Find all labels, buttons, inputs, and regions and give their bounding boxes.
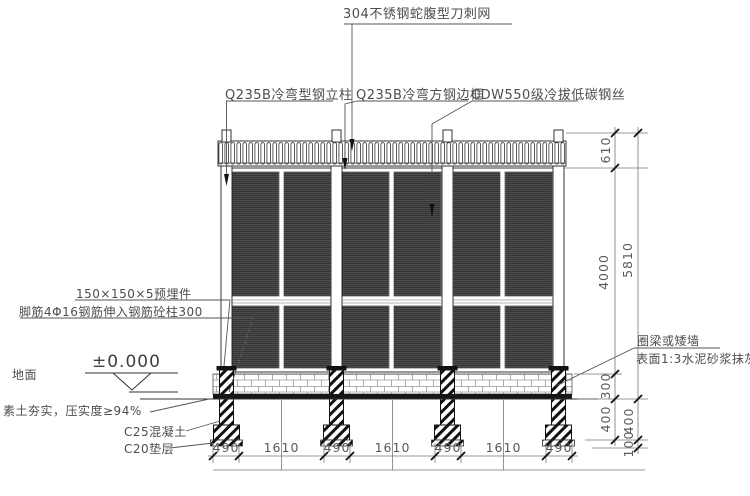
drawing-canvas: [0, 0, 750, 496]
label-ring-beam: 圈梁或矮墙: [637, 332, 700, 349]
label-embed-plate: 150×150×5预埋件: [76, 285, 192, 302]
dim-bay-5: 1610: [476, 441, 532, 455]
label-cushion: C20垫层: [124, 440, 174, 457]
label-concrete: C25混凝土: [124, 423, 187, 440]
label-wire: CDW550级冷拔低碳钢丝: [471, 84, 625, 103]
bottom-dimensions: [208, 400, 645, 470]
razor-wire-band: [218, 141, 566, 166]
ring-beam: [213, 394, 572, 399]
dim-bay-3: 1610: [365, 441, 421, 455]
label-razor-wire: 304不锈钢蛇腹型刀刺网: [343, 3, 491, 22]
label-soil: 素土夯实，压实度≥94%: [3, 402, 142, 419]
label-frame: Q235B冷弯方钢边框: [356, 84, 483, 103]
construction-drawing: 304不锈钢蛇腹型刀刺网 Q235B冷弯型钢立柱 Q235B冷弯方钢边框 CDW…: [0, 0, 750, 496]
dim-mesh-height: 4000: [597, 244, 611, 300]
dim-razor-height: 610: [599, 122, 613, 178]
label-post: Q235B冷弯型钢立柱: [225, 84, 352, 103]
level-marker: [85, 373, 178, 392]
dim-wall-lower: 400: [599, 391, 613, 447]
dim-bay-4: 490: [420, 441, 476, 455]
dim-cushion-thickness: 100: [622, 416, 636, 472]
dim-bay-0: 490: [198, 441, 254, 455]
label-level: ±0.000: [92, 352, 161, 372]
dim-bay-1: 1610: [254, 441, 310, 455]
brick-wall-band: [213, 374, 572, 394]
dim-bay-2: 490: [309, 441, 365, 455]
dim-bay-6: 490: [531, 441, 587, 455]
label-anchor-bars: 脚筋4Φ16钢筋伸入钢筋砼柱300: [19, 303, 203, 320]
label-surface: 表面1:3水泥砂浆抹灰: [636, 350, 750, 367]
label-ground: 地面: [12, 366, 37, 383]
dim-total-height: 5810: [621, 232, 635, 288]
